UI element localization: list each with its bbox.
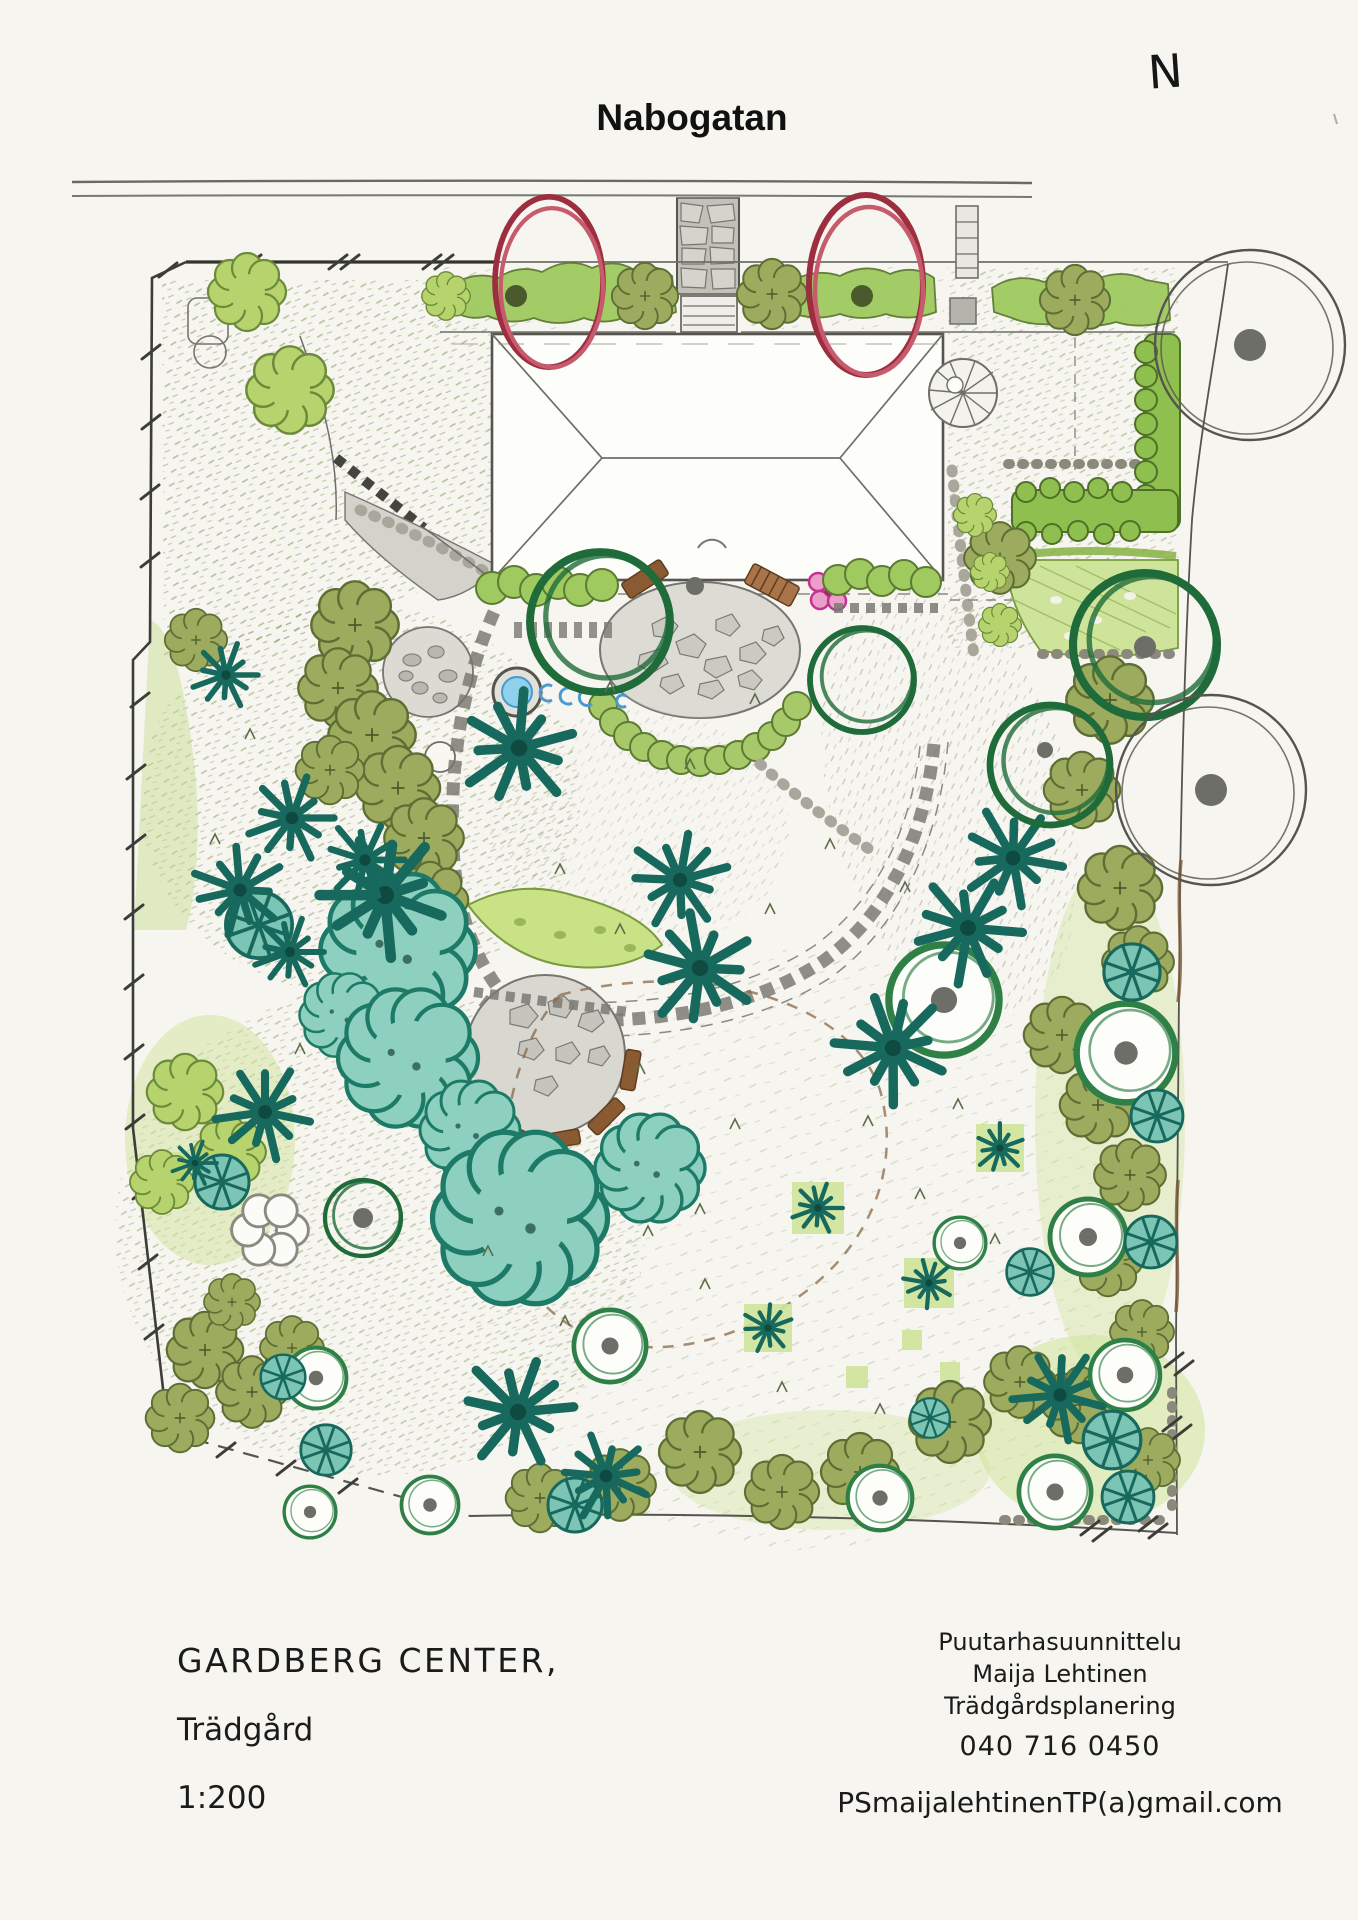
olive-tree-icon — [296, 736, 365, 805]
ring-tree-icon — [1077, 1004, 1176, 1103]
teal-canopy-tree-icon — [595, 1114, 705, 1222]
designer-line-1: Puutarhasuunnittelu — [938, 1628, 1181, 1656]
entry-steps — [681, 296, 737, 332]
olive-tree-icon — [146, 1384, 215, 1453]
shrub-icon — [422, 272, 470, 320]
designer-line-2: Maija Lehtinen — [972, 1660, 1147, 1688]
designer-phone: 040 716 0450 — [960, 1731, 1161, 1762]
street-name-label: Nabogatan — [596, 97, 787, 138]
tree-trunk-dot — [851, 285, 873, 307]
olive-tree-icon — [659, 1411, 741, 1493]
pinwheel-tree-icon — [301, 1425, 351, 1475]
ring-tree-icon — [574, 1310, 646, 1382]
garden-plan-drawing: Nabogatan N GARDBERG CENTER, Trädgård 1:… — [0, 0, 1358, 1920]
olive-tree-icon — [1094, 1139, 1166, 1211]
shrub-icon — [246, 346, 333, 433]
shrub-icon — [208, 253, 286, 331]
ring-tree-icon — [1050, 1199, 1126, 1275]
olive-tree-icon — [745, 1455, 819, 1529]
pinwheel-tree-icon — [1131, 1090, 1183, 1142]
olive-tree-icon — [165, 609, 227, 671]
teal-canopy-tree-icon — [433, 1132, 608, 1304]
stone-driveway — [677, 198, 739, 332]
pinwheel-tree-icon — [1125, 1216, 1177, 1268]
designer-line-3: Trädgårdsplanering — [943, 1691, 1176, 1720]
scale-label: 1:200 — [177, 1780, 266, 1816]
pinwheel-tree-icon — [1083, 1411, 1141, 1469]
ring-tree-icon — [402, 1477, 459, 1534]
tree-trunk-dot — [505, 285, 527, 307]
pinwheel-tree-icon — [1102, 1471, 1154, 1523]
north-compass-label: N — [1146, 43, 1184, 99]
ring-tree-icon — [1090, 1340, 1160, 1410]
pinwheel-tree-icon — [261, 1355, 306, 1400]
designer-email: PSmaijalehtinenTP(a)gmail.com — [837, 1786, 1283, 1819]
hedge-tree-icon — [612, 263, 678, 329]
hedge-tree-icon — [737, 259, 807, 329]
shrub-icon — [971, 553, 1010, 592]
large-tree-circle-icon — [1116, 695, 1306, 885]
pinwheel-tree-icon — [1007, 1249, 1054, 1296]
pinwheel-tree-icon — [910, 1398, 950, 1438]
ring-tree-icon — [848, 1466, 913, 1531]
hedge-tree-icon — [1040, 265, 1110, 335]
site-label: Trädgård — [176, 1712, 313, 1748]
shrub-icon — [954, 494, 997, 537]
shrub-icon — [979, 604, 1022, 647]
scan-mark — [1334, 114, 1337, 124]
olive-tree-icon — [204, 1274, 260, 1330]
ring-tree-icon — [1019, 1456, 1091, 1528]
olive-tree-icon — [1078, 846, 1162, 930]
ring-tree-icon — [934, 1217, 986, 1269]
large-tree-circle-icon — [1155, 250, 1345, 440]
pinwheel-tree-icon — [1104, 944, 1160, 1000]
project-title: GARDBERG CENTER, — [177, 1641, 559, 1680]
garden-plan-sheet: Nabogatan N GARDBERG CENTER, Trädgård 1:… — [0, 0, 1358, 1920]
ring-tree-icon — [284, 1486, 336, 1538]
